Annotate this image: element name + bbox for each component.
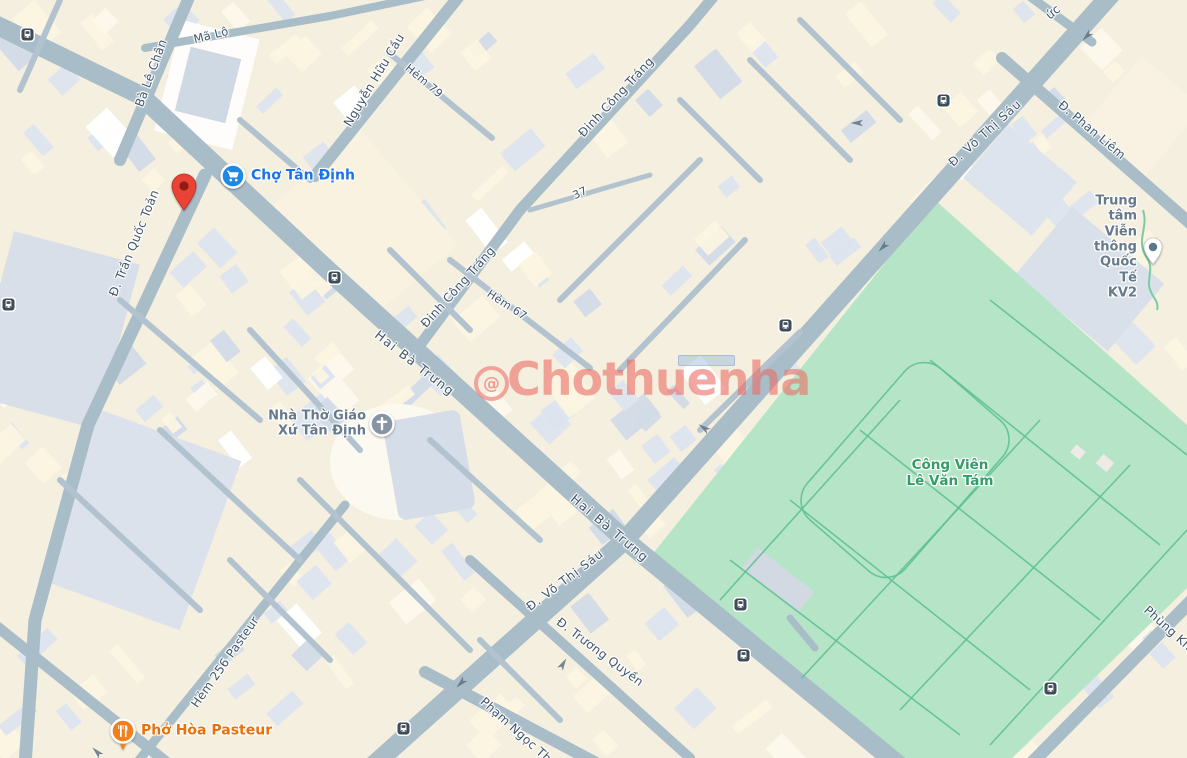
street-label: Bà Lê Chân [132,37,169,109]
map-canvas[interactable]: @ Chothuenha Mã LộBà Lê ChânNguyễn Hữu C… [0,0,1187,758]
bus-stop-icon[interactable] [736,648,751,667]
bus-stop-icon[interactable] [1,297,16,316]
street-label: Đ. Phan Liêm [1056,98,1129,162]
location-marker-pin[interactable] [171,173,197,215]
street-label: Hai Bà Trưng [372,327,458,399]
street-label: Đinh Công Tráng [575,54,656,140]
street-label: Đinh Công Tráng [418,244,498,331]
bus-stop-icon[interactable] [778,318,793,337]
church-cross-icon[interactable] [369,411,395,441]
street-label: Đ. Trương Quyền [554,615,646,689]
bus-stop-icon[interactable] [733,597,748,616]
street-label: Mã Lộ [192,24,230,46]
street-label: Hẻm 67 [485,287,530,322]
cho-tan-dinh-label[interactable]: Chợ Tân Định [251,168,355,185]
street-label: Đ. Võ Thị Sáu [524,546,607,613]
nha-tho-giao-xu-tan-dinh-label[interactable]: Nhà Thờ Giáo Xứ Tân Định [268,409,366,440]
street-label: Hẻm 79 [403,62,446,101]
street-label: Đ. Trần Quốc Toản [106,188,162,299]
map-labels-layer: Mã LộBà Lê ChânNguyễn Hữu CầuHẻm 79Đinh … [0,0,1187,758]
trung-tam-vien-thong-quoc-te-kv2-label[interactable]: Trung tâm Viễn thông Quốc Tế KV2 [1087,193,1137,300]
bus-stop-icon[interactable] [936,93,951,112]
place-pin-icon[interactable] [1143,237,1163,269]
street-label: Hai Bà Trưng [568,491,652,565]
bus-stop-icon[interactable] [20,27,35,46]
street-label: Đ. Võ Thị Sáu [946,97,1025,170]
street-label: 37 [571,184,590,202]
cong-vien-le-van-tam-label[interactable]: Công Viên Lê Văn Tám [907,458,994,490]
street-label: Nguyễn Hữu Cầu [341,31,407,129]
pho-hoa-pasteur-label[interactable]: Phở Hòa Pasteur [141,723,272,740]
street-label: Hẻm 256 Pasteur [188,614,261,711]
bus-stop-icon[interactable] [1043,681,1058,700]
shopping-cart-icon[interactable] [220,163,246,193]
street-label: ức [1043,2,1063,22]
bus-stop-icon[interactable] [396,721,411,740]
street-label: Phùng Kh [1141,603,1187,653]
bus-stop-icon[interactable] [327,270,342,289]
restaurant-icon[interactable] [110,718,136,755]
street-label: Phạm Ngọc Th [478,694,555,758]
